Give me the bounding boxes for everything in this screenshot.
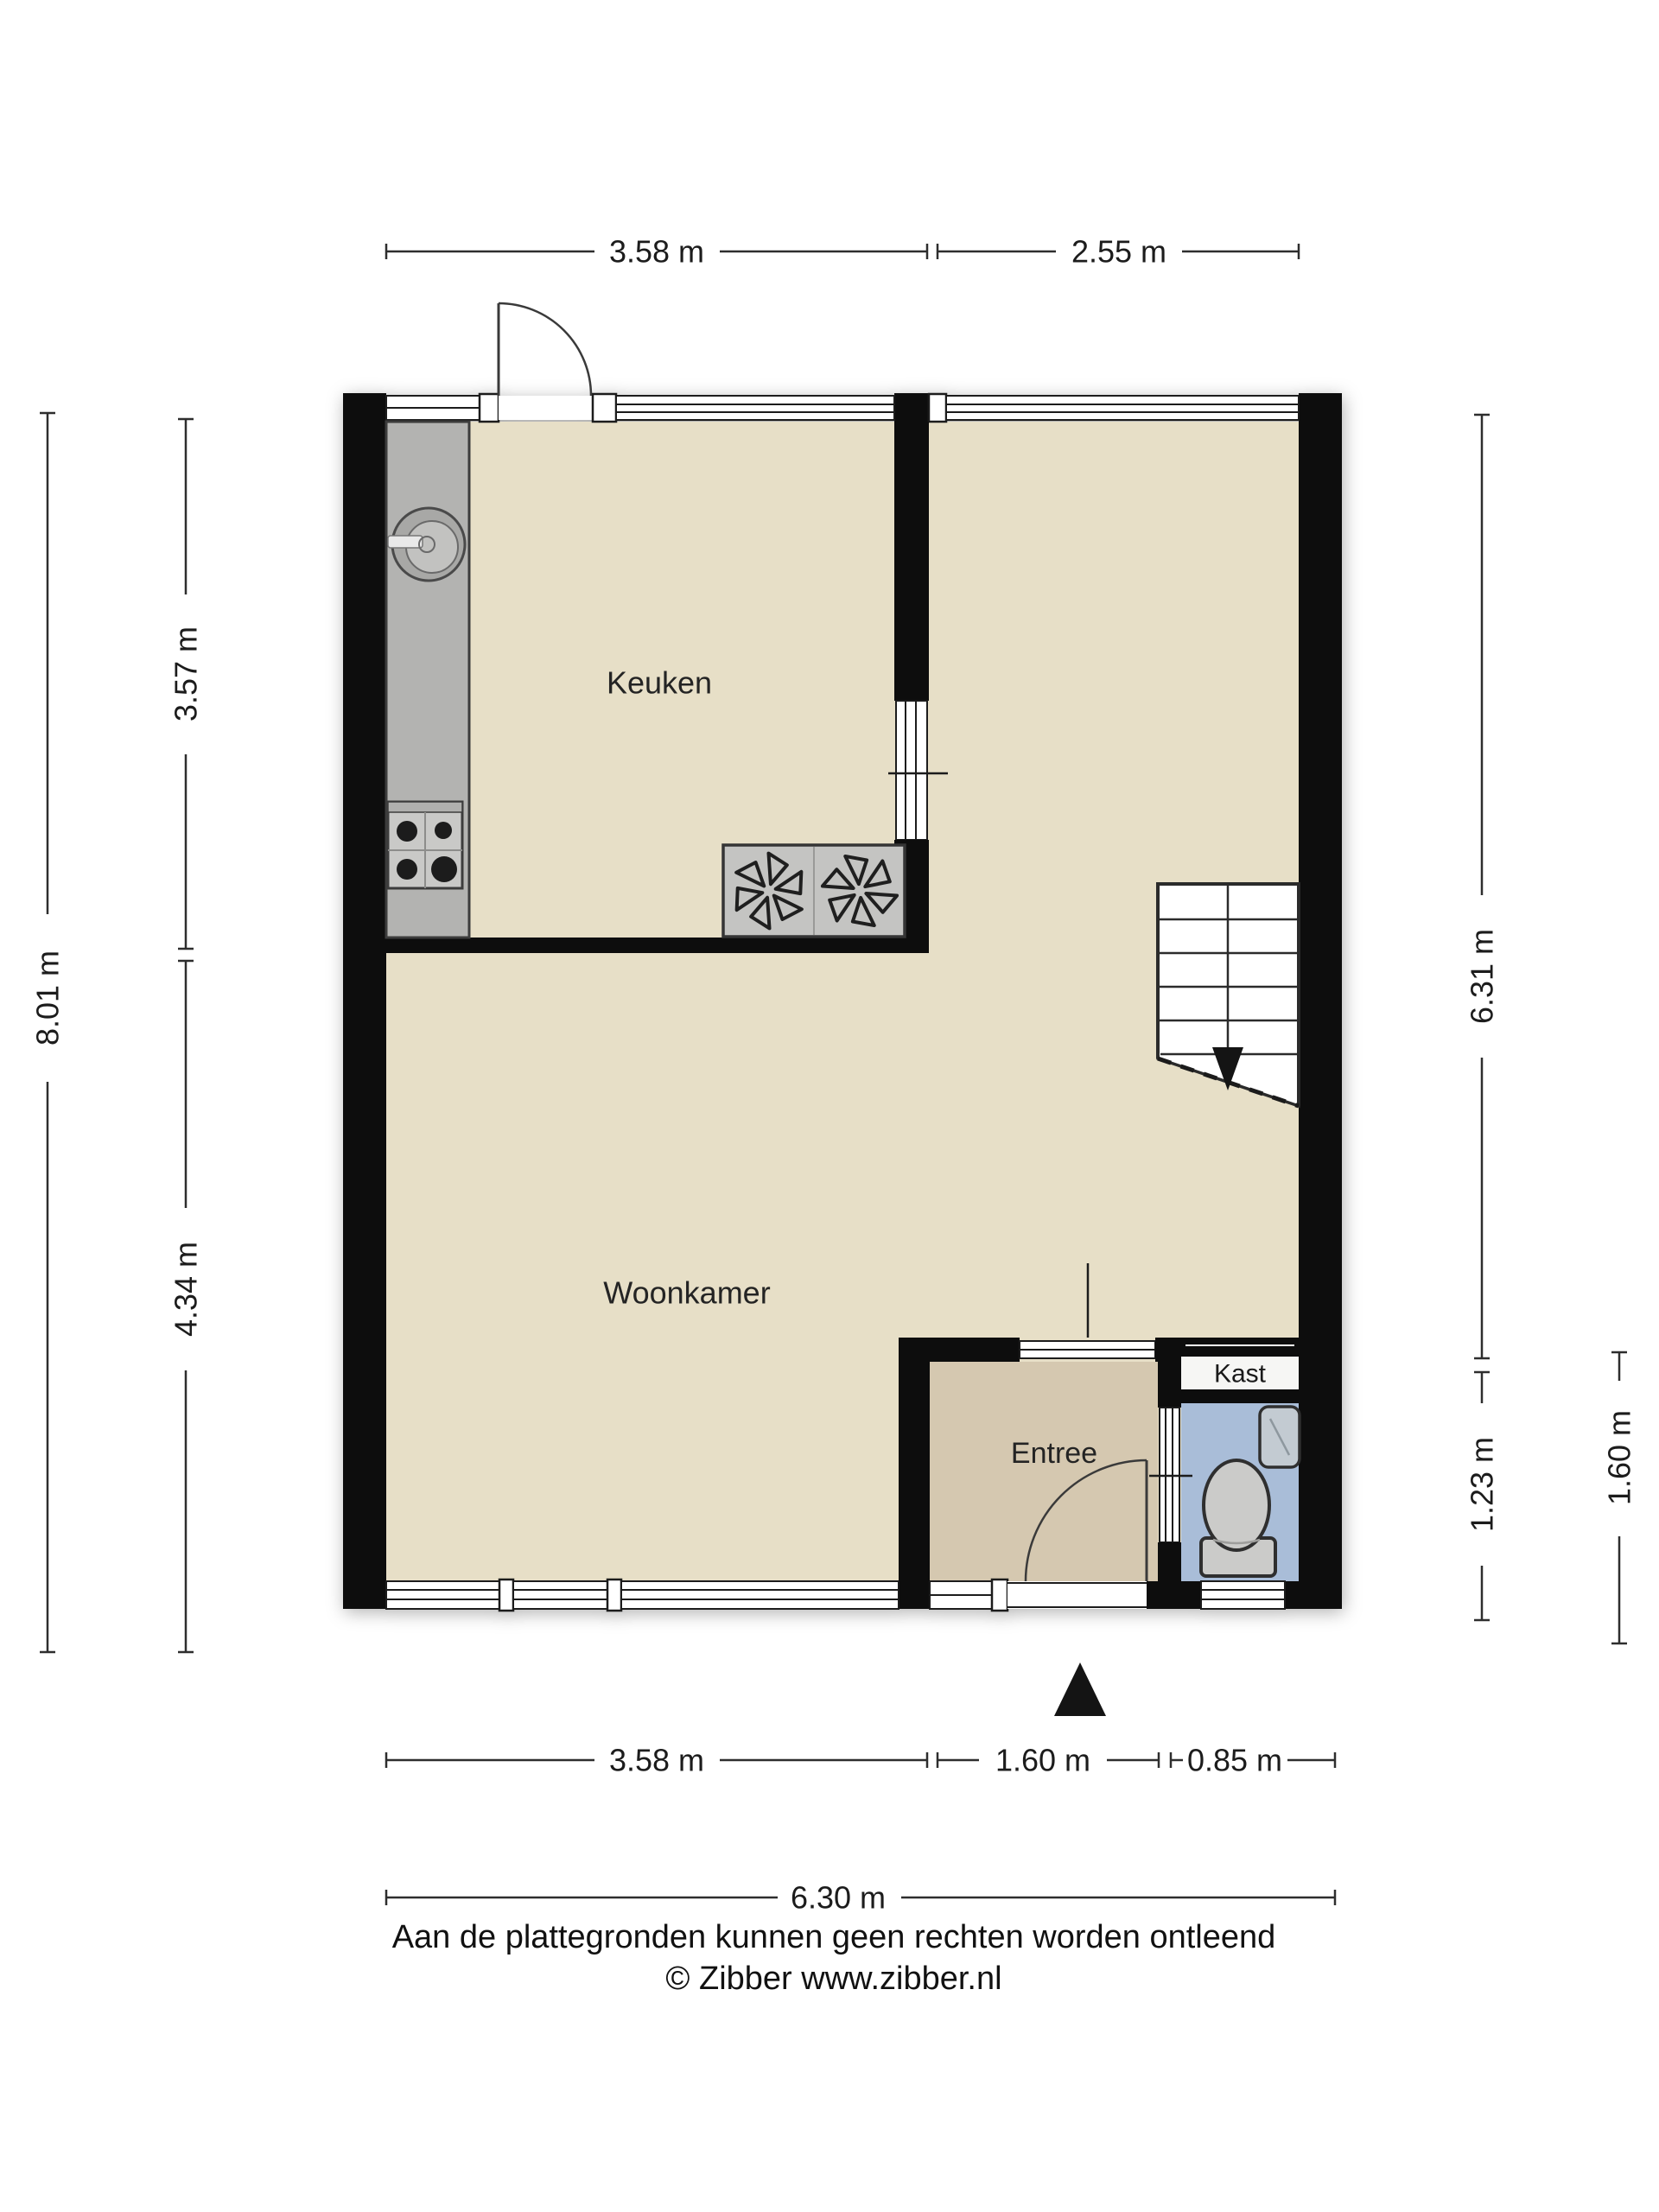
north-arrow-icon xyxy=(1054,1662,1106,1716)
floorplan-canvas: Keuken Woonkamer Entree Kast 3.58 m 2.55… xyxy=(0,0,1659,2212)
dim-left-outer: 8.01 m xyxy=(30,950,66,1046)
dim-left-inner-top: 3.57 m xyxy=(168,626,204,721)
dim-right-inner-bottom: 1.23 m xyxy=(1465,1437,1500,1532)
room-label-entree: Entree xyxy=(1011,1437,1097,1470)
room-label-woonkamer: Woonkamer xyxy=(603,1275,770,1311)
room-label-kast: Kast xyxy=(1214,1360,1267,1389)
dim-right-outer: 1.60 m xyxy=(1602,1410,1637,1505)
dim-top-right: 2.55 m xyxy=(1071,234,1166,270)
footer-disclaimer: Aan de plattegronden kunnen geen rechten… xyxy=(392,1919,1276,1955)
dim-bottom-right: 0.85 m xyxy=(1187,1743,1282,1778)
dim-right-inner-top: 6.31 m xyxy=(1465,929,1500,1024)
top-window-band xyxy=(386,394,1299,422)
floor-entree xyxy=(930,1362,1158,1581)
footer-copyright: © Zibber www.zibber.nl xyxy=(665,1961,1001,1997)
room-label-keuken: Keuken xyxy=(607,665,712,701)
hand-basin-icon xyxy=(1260,1407,1300,1467)
stove-icon xyxy=(388,802,462,888)
floorplan-page: Keuken Woonkamer Entree Kast 3.58 m 2.55… xyxy=(0,0,1659,2212)
toilet-icon xyxy=(1201,1460,1275,1576)
extractor-icon xyxy=(723,845,905,937)
dim-bottom-total: 6.30 m xyxy=(791,1880,886,1916)
dim-bottom-left: 3.58 m xyxy=(609,1743,704,1778)
top-door xyxy=(499,303,591,396)
dim-top-left: 3.58 m xyxy=(609,234,704,270)
dim-left-inner-bottom: 4.34 m xyxy=(168,1242,204,1337)
dim-bottom-middle: 1.60 m xyxy=(995,1743,1090,1778)
